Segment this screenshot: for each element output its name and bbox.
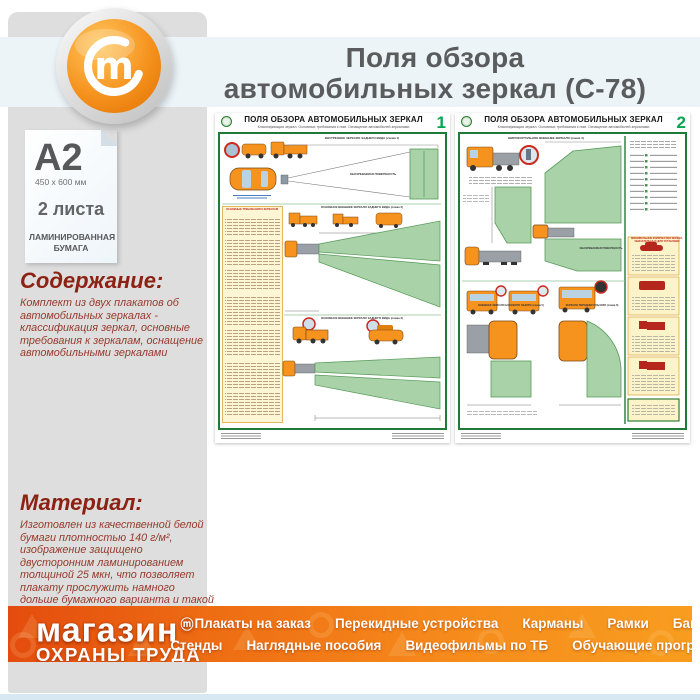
- p1-footnote-right: [392, 433, 444, 439]
- footer-logo[interactable]: магазинⓜ ОХРАНЫ ТРУДА: [36, 609, 201, 662]
- menu-item-frames[interactable]: Рамки: [595, 616, 660, 631]
- logo-m-icon: m: [67, 19, 161, 113]
- footer-bar: магазинⓜ ОХРАНЫ ТРУДА Плакаты на заказ П…: [8, 606, 692, 662]
- poster2-header: ПОЛЯ ОБЗОРА АВТОМОБИЛЬНЫХ ЗЕРКАЛ Классиф…: [455, 113, 690, 132]
- p2-footnote-left: [461, 433, 501, 439]
- p2-min-mirrors-label: МИНИМАЛЬНОЕ КОЛИЧЕСТВО ЗЕРКАЛ, ОБЯЗАТЕЛЬ…: [631, 237, 683, 243]
- page-title-line2: автомобильных зеркал (С-78): [170, 73, 700, 104]
- svg-text:m: m: [94, 44, 134, 88]
- p1-scheme2-label: ОСНОВНОЕ ВНЕШНЕЕ ЗЕРКАЛО ЗАДНЕГО ВИДА (с…: [286, 205, 438, 209]
- page-a2-icon: A2 450 x 600 мм 2 листа ЛАМИНИРОВАННАЯ Б…: [25, 130, 117, 263]
- sheets-label: 2 листа: [25, 199, 117, 220]
- content-text: Комплект из двух плакатов об автомобильн…: [20, 297, 208, 360]
- p2-scheme6-label: ЗЕРКАЛО ПЕРЕДНЕГО ОБЗОРА (схема 6): [559, 304, 625, 307]
- menu-item-pockets[interactable]: Карманы: [510, 616, 595, 631]
- page-title: Поля обзора автомобильных зеркал (С-78): [170, 42, 700, 104]
- material-heading: Материал:: [20, 490, 143, 516]
- poster1-title: ПОЛЯ ОБЗОРА АВТОМОБИЛЬНЫХ ЗЕРКАЛ: [233, 115, 434, 124]
- footer-menu-row1: Плакаты на заказ Перекидные устройства К…: [218, 616, 686, 631]
- menu-item-baguette[interactable]: Багет: [661, 616, 692, 631]
- poster2-subtitle: Классификация зеркал. Основные требовани…: [473, 125, 674, 129]
- poster1-diagram: [221, 135, 442, 425]
- eco-badge-icon: [221, 116, 232, 127]
- menu-item-safety-videos[interactable]: Видеофильмы по ТБ: [393, 638, 560, 653]
- poster2-diagram: [461, 135, 682, 425]
- poster1-number: 1: [437, 113, 446, 133]
- shop-logo[interactable]: m: [56, 8, 172, 124]
- product-page: { "header": { "title_line1": "Поля обзор…: [0, 0, 700, 700]
- poster1-content: ВНУТРЕННЕЕ ЗЕРКАЛО ЗАДНЕГО ВИДА (схема 1…: [218, 132, 447, 430]
- menu-item-training-programs[interactable]: Обучающие программы: [560, 638, 692, 653]
- poster1-header: ПОЛЯ ОБЗОРА АВТОМОБИЛЬНЫХ ЗЕРКАЛ Классиф…: [215, 113, 450, 132]
- bottom-accent-strip: [0, 694, 700, 700]
- page-title-line1: Поля обзора: [170, 42, 700, 73]
- menu-item-stands[interactable]: Стенды: [158, 638, 234, 653]
- paper-label: ЛАМИНИРОВАННАЯ БУМАГА: [29, 232, 113, 253]
- menu-item-posters[interactable]: Плакаты на заказ: [182, 616, 323, 631]
- menu-item-visual-aids[interactable]: Наглядные пособия: [234, 638, 393, 653]
- poster1-subtitle: Классификация зеркал. Основные требовани…: [233, 125, 434, 129]
- folded-corner-icon: [101, 130, 117, 146]
- p1-footnote-left: [221, 433, 261, 439]
- p1-surface-label: ОБОЗРЕВАЕМАЯ ПОВЕРХНОСТЬ: [340, 172, 406, 176]
- p1-requirements-label: ОСНОВНЫЕ ТРЕБОВАНИЯ К ЗЕРКАЛАМ: [224, 208, 280, 211]
- poster-thumbnail-2[interactable]: ПОЛЯ ОБЗОРА АВТОМОБИЛЬНЫХ ЗЕРКАЛ Классиф…: [455, 113, 690, 443]
- poster2-title: ПОЛЯ ОБЗОРА АВТОМОБИЛЬНЫХ ЗЕРКАЛ: [473, 115, 674, 124]
- size-label: 450 x 600 мм: [35, 177, 117, 187]
- p2-scheme4-label: ШИРОКОУГОЛЬНОЕ ВНЕШНЕЕ ЗЕРКАЛО (схема 4): [467, 136, 625, 140]
- poster2-number: 2: [677, 113, 686, 133]
- p2-scheme5-label: ВНЕШНЕЕ ЗЕРКАЛО БОКОВОГО ОБЗОРА (схема 5…: [467, 304, 555, 307]
- eco-badge-icon: [461, 116, 472, 127]
- footer-menu: Плакаты на заказ Перекидные устройства К…: [218, 606, 686, 662]
- p1-scheme3-label: ОСНОВНОЕ ВНЕШНЕЕ ЗЕРКАЛО ЗАДНЕГО ВИДА (с…: [286, 316, 438, 320]
- p2-footnote-right: [632, 433, 684, 439]
- content-heading: Содержание:: [20, 268, 163, 294]
- p2-surface-label: ОБОЗРЕВАЕМАЯ ПОВЕРХНОСТЬ: [577, 247, 625, 250]
- poster2-content: ШИРОКОУГОЛЬНОЕ ВНЕШНЕЕ ЗЕРКАЛО (схема 4)…: [458, 132, 687, 430]
- menu-item-flip-systems[interactable]: Перекидные устройства: [323, 616, 510, 631]
- safety-circle-icon: [10, 632, 36, 658]
- p1-scheme1-label: ВНУТРЕННЕЕ ЗЕРКАЛО ЗАДНЕГО ВИДА (схема 1…: [286, 136, 438, 140]
- footer-menu-row2: Стенды Наглядные пособия Видеофильмы по …: [218, 638, 686, 653]
- poster-thumbnail-1[interactable]: ПОЛЯ ОБЗОРА АВТОМОБИЛЬНЫХ ЗЕРКАЛ Классиф…: [215, 113, 450, 443]
